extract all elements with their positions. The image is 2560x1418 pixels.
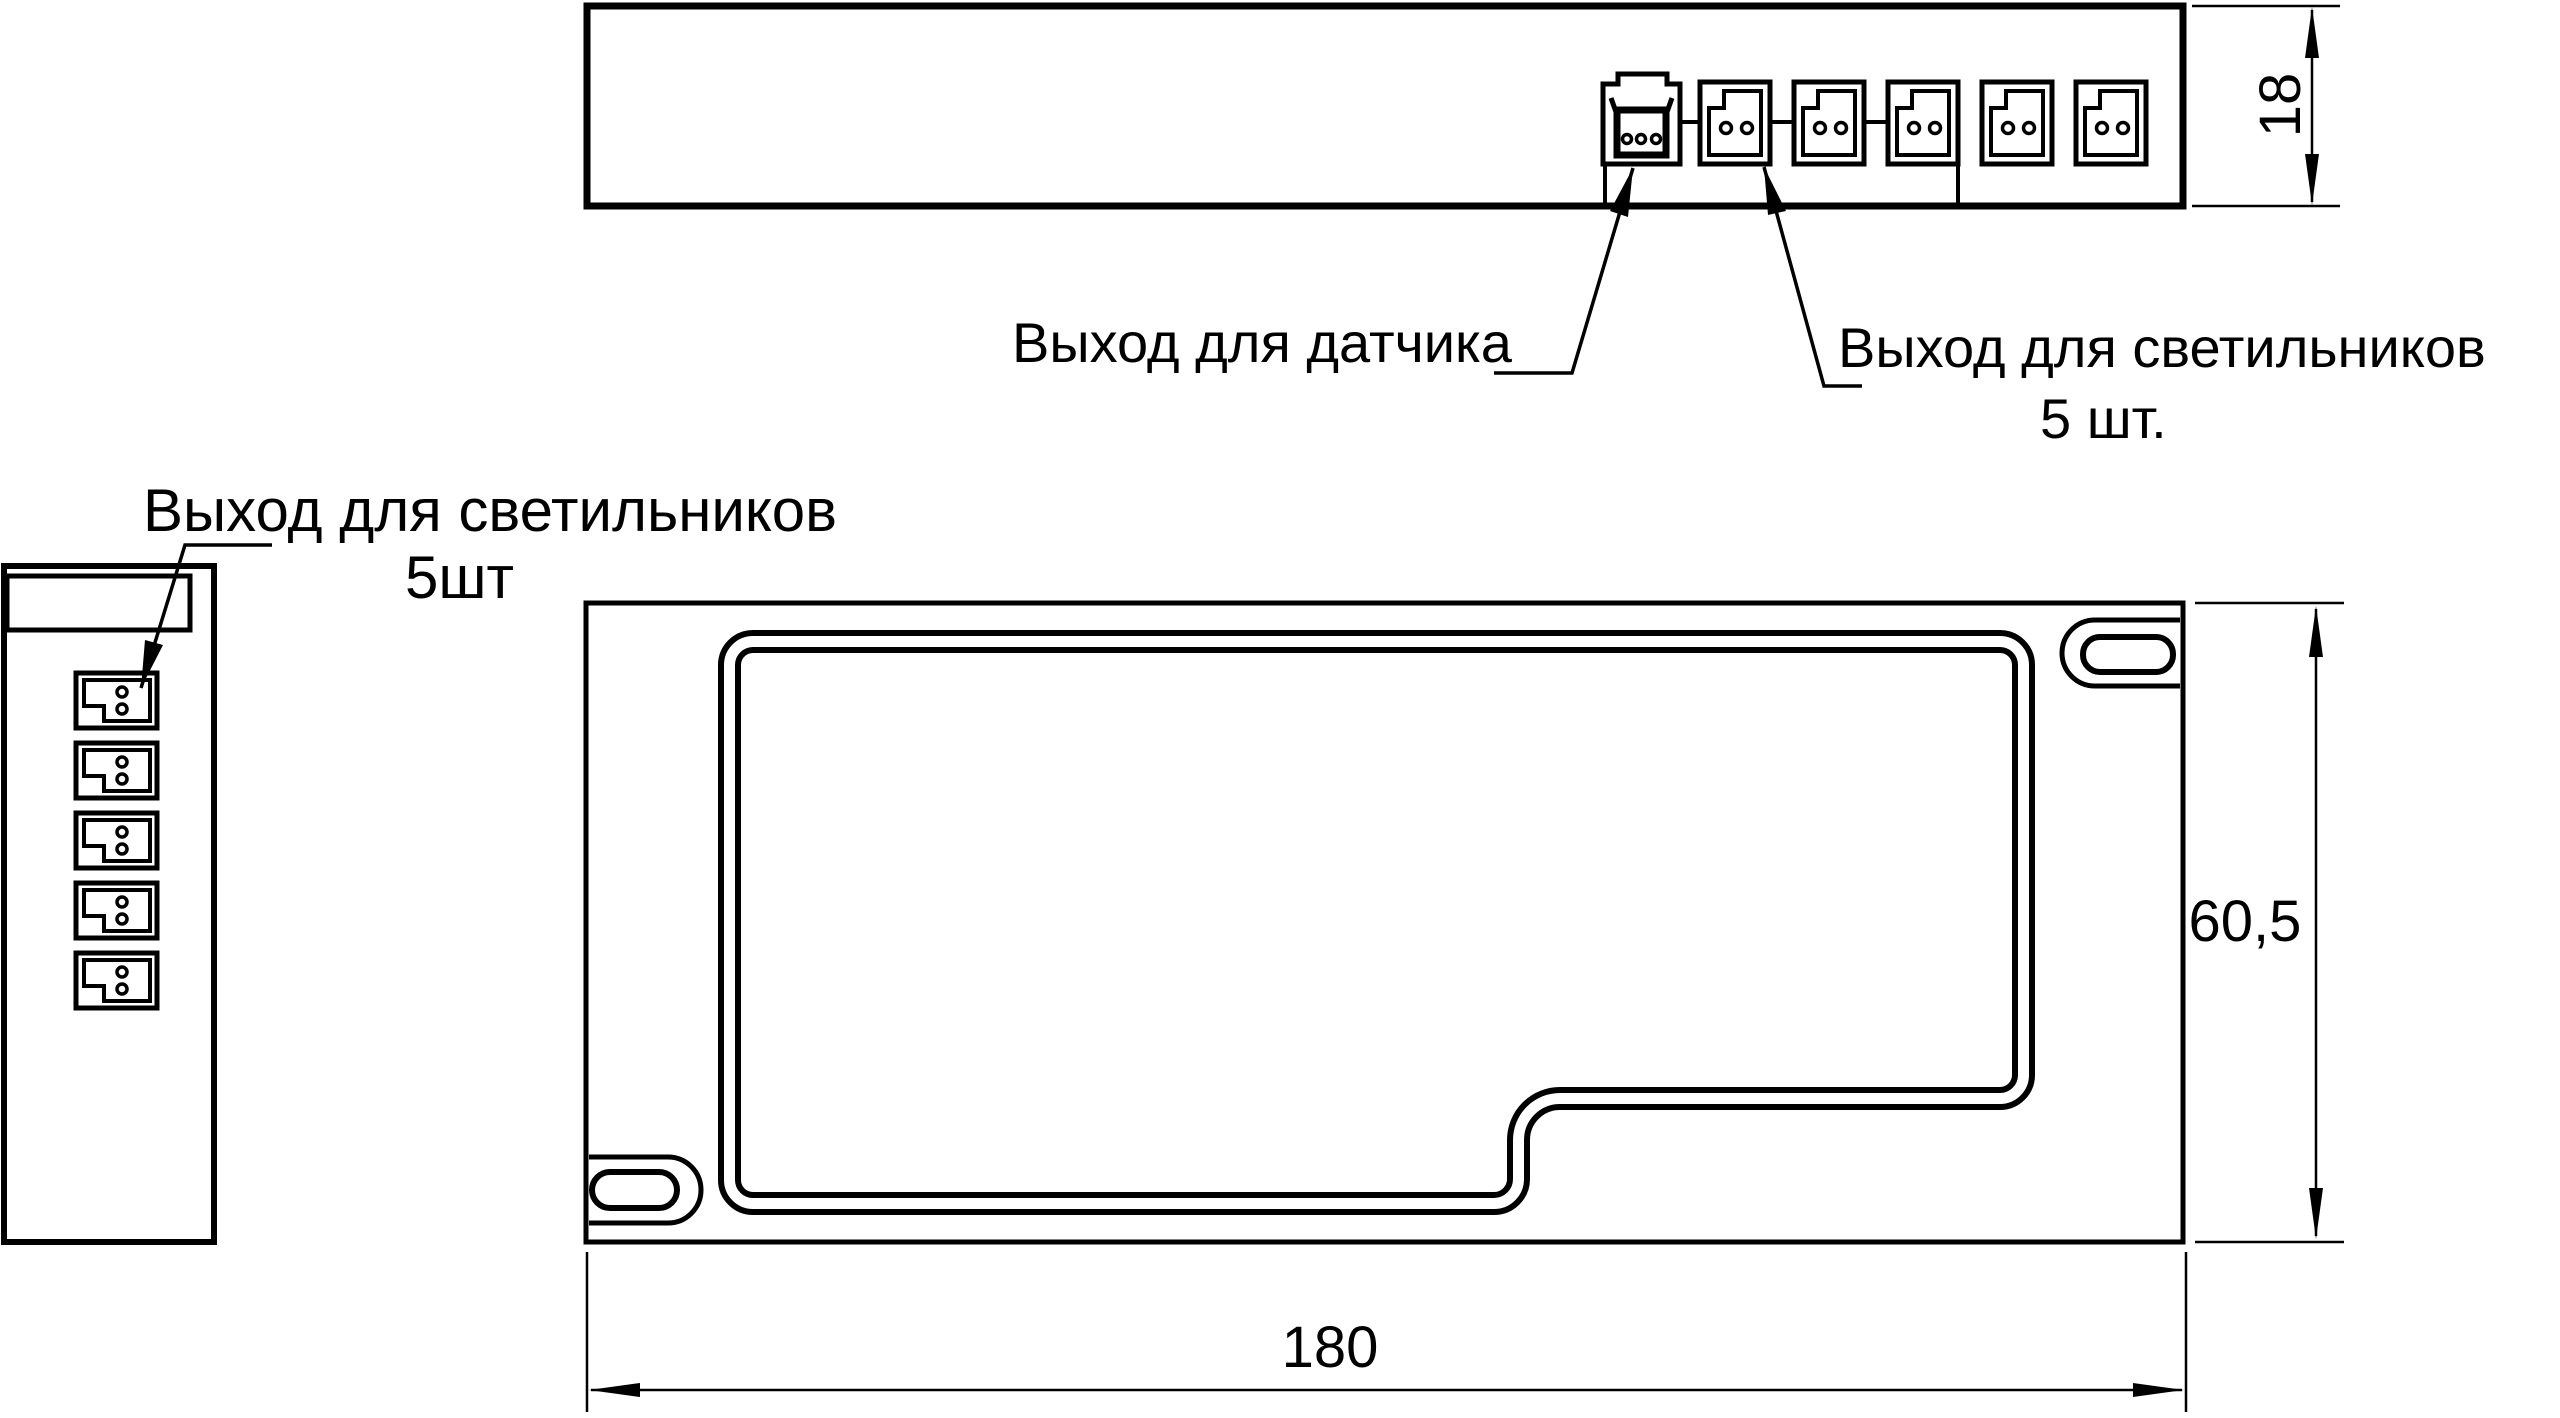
luminaire-output-side-label-line2: 5шт — [405, 544, 514, 611]
luminaire-connector-icon-4 — [1982, 82, 2052, 164]
side-connector-icon-3 — [76, 813, 157, 868]
pin-icon — [1742, 123, 1753, 134]
sensor-connector-socket — [1617, 110, 1666, 155]
luminaire-connector-icon-3 — [1888, 82, 1958, 164]
luminaire-connector-icon-5 — [2076, 82, 2146, 164]
dimension-180-lines — [587, 1252, 2186, 1412]
dimension-arrow-icon — [2133, 1383, 2184, 1397]
inner-cover-outline-outer — [721, 633, 2032, 1212]
connector-socket — [2085, 91, 2137, 155]
technical-drawing-page: 18 Выход для датчика Выход для светильни… — [0, 0, 2560, 1418]
luminaire-output-side-label-line1: Выход для светильников — [143, 477, 837, 544]
connector-socket — [84, 960, 150, 1001]
pin-icon — [2003, 123, 2014, 134]
leader-arrow-icon — [1610, 168, 1633, 217]
dimension-arrow-icon — [2305, 7, 2319, 58]
pin-icon — [1652, 135, 1661, 144]
pin-icon — [117, 897, 127, 907]
callout-luminaire-outputs-side: Выход для светильников 5шт — [141, 477, 837, 688]
side-view-body — [4, 566, 214, 1242]
connector-socket — [1803, 91, 1855, 155]
top-view-body — [587, 6, 2183, 206]
inner-cover-outline-inner — [738, 650, 2015, 1195]
leader-line — [1494, 168, 1633, 373]
mounting-hole-icon — [2083, 637, 2173, 672]
luminaire-connector-icon-2 — [1794, 82, 1864, 164]
connector-socket — [84, 890, 150, 931]
callout-sensor-output: Выход для датчика — [1012, 168, 1633, 374]
mounting-pocket-outline — [2062, 620, 2180, 686]
luminaire-connector-icon-1 — [1700, 82, 1770, 164]
luminaire-output-label-line1: Выход для светильников — [1838, 316, 2486, 379]
led-driver-drawing: 18 Выход для датчика Выход для светильни… — [0, 0, 2560, 1418]
connector-socket — [84, 750, 150, 791]
connector-socket — [1709, 91, 1761, 155]
pin-icon — [117, 774, 127, 784]
sensor-output-label: Выход для датчика — [1012, 311, 1513, 374]
dimension-18-value: 18 — [2248, 73, 2313, 138]
mounting-hole-icon — [592, 1172, 677, 1208]
mounting-slot-top-right — [2062, 620, 2180, 686]
connector-socket — [84, 820, 150, 861]
plan-view — [586, 603, 2183, 1242]
dimension-arrow-icon — [2309, 606, 2323, 657]
dimension-arrow-icon — [2309, 1188, 2323, 1239]
plan-view-body — [586, 603, 2183, 1242]
connector-socket — [1897, 91, 1949, 155]
pin-icon — [117, 757, 127, 767]
dimension-18: 18 — [2192, 6, 2340, 206]
side-connector-icon-4 — [76, 883, 157, 938]
pin-icon — [2097, 123, 2108, 134]
pin-icon — [1909, 123, 1920, 134]
dimension-60-5: 60,5 — [2189, 603, 2344, 1242]
pin-icon — [117, 704, 127, 714]
pin-icon — [117, 844, 127, 854]
sensor-connector-icon — [1603, 74, 1680, 164]
pin-icon — [117, 827, 127, 837]
side-connector-icon-5 — [76, 953, 157, 1008]
connector-socket — [1991, 91, 2043, 155]
mounting-slot-bottom-left — [589, 1157, 701, 1223]
left-side-view — [4, 566, 214, 1242]
pin-icon — [117, 687, 127, 697]
pin-icon — [117, 914, 127, 924]
pin-icon — [1721, 123, 1732, 134]
pin-icon — [117, 967, 127, 977]
pin-icon — [2024, 123, 2035, 134]
pin-icon — [2118, 123, 2129, 134]
pin-icon — [1637, 135, 1646, 144]
dimension-180: 180 — [587, 1252, 2186, 1412]
pin-icon — [1930, 123, 1941, 134]
luminaire-output-label-line2: 5 шт. — [2040, 387, 2167, 450]
pin-icon — [117, 984, 127, 994]
pin-icon — [1836, 123, 1847, 134]
dimension-180-value: 180 — [1282, 1315, 1379, 1380]
housing-seam-lines — [1605, 164, 1958, 204]
top-edge-view — [587, 6, 2183, 206]
pin-icon — [1623, 135, 1632, 144]
dimension-arrow-icon — [2305, 154, 2319, 205]
pin-icon — [1815, 123, 1826, 134]
dimension-60-5-value: 60,5 — [2189, 889, 2302, 954]
side-connector-icon-2 — [76, 743, 157, 798]
mounting-pocket-outline — [589, 1157, 701, 1223]
dimension-arrow-icon — [589, 1383, 640, 1397]
